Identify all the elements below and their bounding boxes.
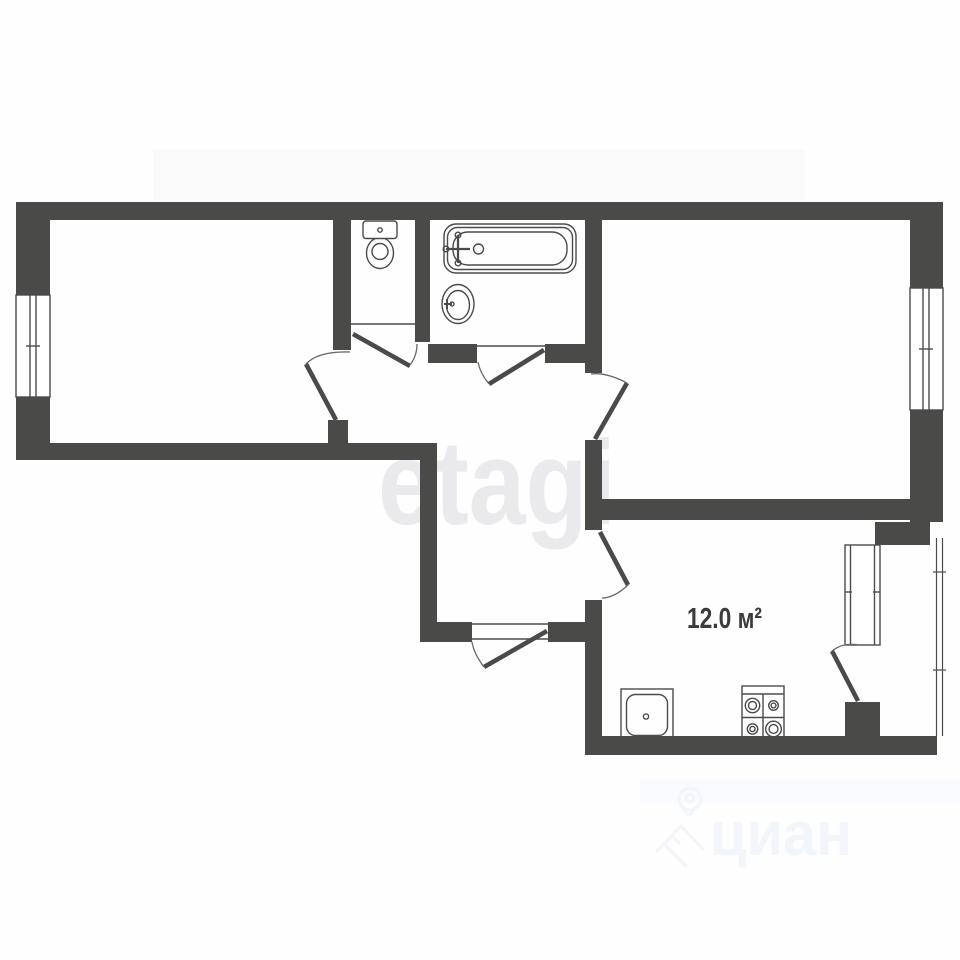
cian-watermark: циан [710,800,852,869]
window-living-room [910,288,943,410]
window-kitchen [845,545,880,645]
etagi-watermark: etagi [378,416,616,550]
wall-segment [428,344,477,363]
faint-band-top [153,150,805,200]
wall-segment [328,420,348,443]
wall-segment [585,736,937,755]
window-left-room [16,295,50,397]
wall-segment [845,702,880,738]
wall-segment [420,622,472,642]
wall-segment [585,600,602,740]
toilet-tank [363,221,397,239]
wall-segment [16,220,50,295]
wall-segment [16,443,437,460]
wall-segment [16,202,943,220]
wall-segment [333,220,351,350]
wall-segment [585,499,910,520]
wall-segment [548,622,585,642]
wall-segment [910,202,943,288]
wall-segment [585,220,602,373]
floorplan-svg: etagi [0,0,960,960]
wall-segment [415,220,430,342]
wall-segment [420,443,437,642]
kitchen-area-label: 12.0 м² [687,603,762,635]
wall-segment [910,410,943,522]
floorplan-image: etagi [0,0,960,960]
wall-segment [875,522,930,545]
wall-segment [545,344,588,363]
